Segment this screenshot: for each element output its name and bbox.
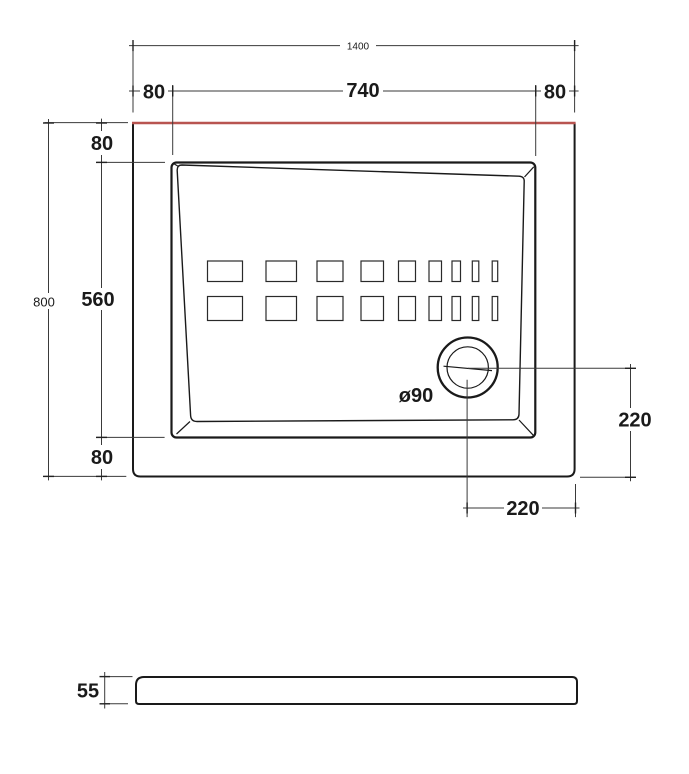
svg-text:80: 80 [143, 82, 165, 104]
svg-text:800: 800 [33, 295, 55, 310]
svg-text:220: 220 [618, 410, 651, 432]
svg-text:80: 80 [544, 82, 566, 104]
svg-text:1400: 1400 [347, 41, 370, 52]
svg-text:80: 80 [91, 447, 113, 469]
svg-text:55: 55 [77, 681, 99, 703]
svg-text:220: 220 [506, 498, 539, 520]
svg-text:ø90: ø90 [399, 385, 433, 407]
svg-text:560: 560 [81, 289, 114, 311]
svg-text:80: 80 [91, 133, 113, 155]
svg-text:740: 740 [346, 80, 379, 102]
